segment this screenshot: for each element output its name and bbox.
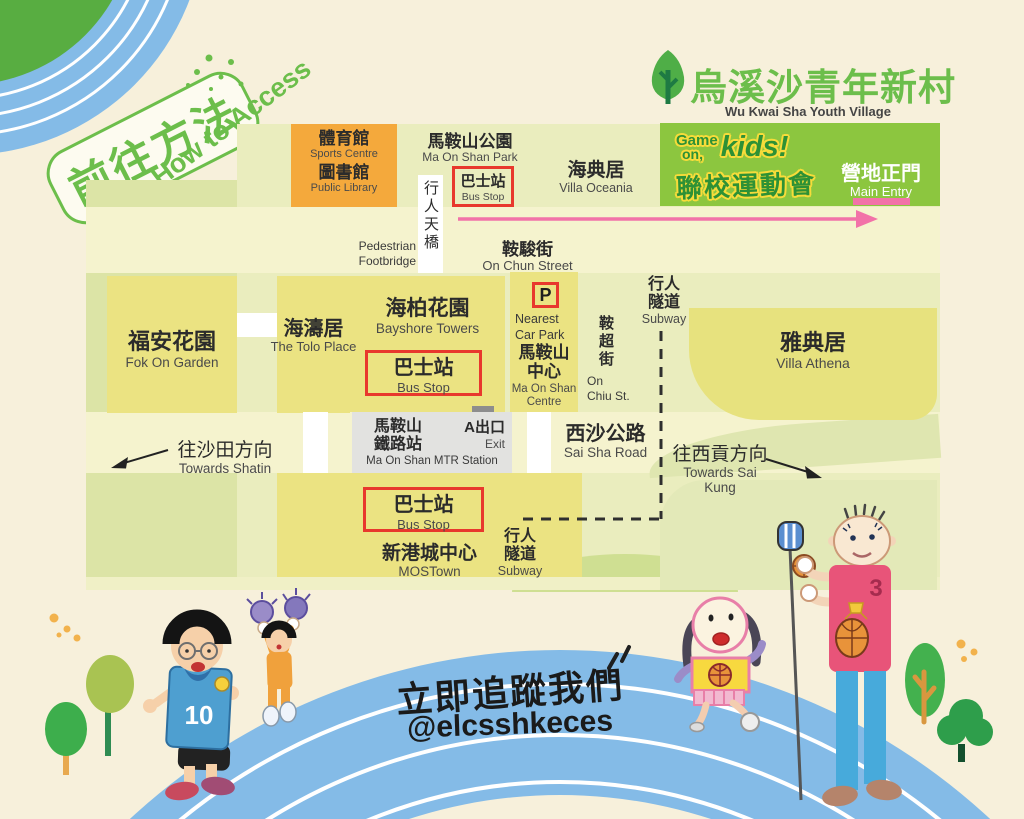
label-sai-sha-road: 西沙公路 Sai Sha Road: [558, 423, 653, 461]
villa-athena-zh: 雅典居: [689, 331, 937, 356]
label-towards-shatin: 往沙田方向 Towards Shatin: [170, 440, 280, 476]
bayshore-zh: 海柏花園: [350, 297, 505, 321]
tree-tall-green: [905, 643, 945, 722]
tree-icon: [646, 48, 690, 106]
bus-stop-zh: 巴士站: [460, 170, 505, 191]
confetti-dots-right: [957, 640, 978, 663]
label-villa-athena: 雅典居 Villa Athena: [689, 331, 937, 371]
runner-bib-number: 10: [185, 700, 214, 730]
mtr-exit-platform: [472, 406, 494, 412]
bayshore-en: Bayshore Towers: [350, 321, 505, 336]
label-on-chiu-street-en: On Chiu St.: [587, 374, 633, 404]
on-chun-en: On Chun Street: [480, 259, 575, 274]
main-entry-label: 營地正門 Main Entry: [840, 163, 922, 200]
on-chiu-en1: On: [587, 374, 633, 389]
fok-on-zh: 福安花園: [107, 330, 237, 355]
car-park-en1: Nearest: [515, 311, 575, 327]
mos-centre-zh2: 中心: [508, 362, 580, 381]
exit-a-zh: A出口: [455, 419, 505, 437]
library-en: Public Library: [291, 182, 397, 194]
exit-a-en: Exit: [455, 437, 505, 451]
label-sports-centre-library: 體育館 Sports Centre 圖書館 Public Library: [291, 129, 397, 195]
villa-oceania-en: Villa Oceania: [553, 181, 639, 195]
fok-on-en: Fok On Garden: [107, 355, 237, 370]
villa-oceania-zh: 海典居: [553, 160, 639, 181]
access-map-poster: 前往方法 How to Access 烏溪沙青年新村 Wu Kwai Sha Y…: [0, 0, 1024, 819]
event-logo-kids: kids!: [721, 131, 789, 164]
subway-en: Subway: [640, 312, 688, 326]
label-tolo-place: 海濤居 The Tolo Place: [268, 318, 359, 355]
car-park-box: P: [532, 282, 559, 308]
bus-stop-box-bayshore: 巴士站 Bus Stop: [365, 350, 482, 396]
subway-en: Subway: [494, 564, 546, 578]
label-mtr-en: Ma On Shan MTR Station: [354, 455, 510, 467]
crossing: [303, 412, 328, 473]
label-bayshore-towers: 海柏花園 Bayshore Towers: [350, 297, 505, 336]
mos-centre-zh1: 馬鞍山: [508, 343, 580, 362]
event-logo-name: 聯校運動會: [675, 164, 816, 206]
mostown-en: MOSTown: [352, 564, 507, 579]
sai-sha-en: Sai Sha Road: [558, 445, 653, 460]
car-park-symbol: P: [539, 285, 551, 306]
mtr-zh1: 馬鞍山: [374, 418, 436, 436]
tree-bushy-green: [937, 699, 993, 762]
mos-centre-en2: Centre: [508, 396, 580, 409]
tolo-zh: 海濤居: [268, 318, 359, 340]
subway-zh2: 隧道: [494, 546, 546, 564]
label-mtr-zh: 馬鞍山 鐵路站: [374, 418, 436, 453]
village-title-en-text: Wu Kwai Sha Youth Village: [725, 104, 891, 119]
label-subway-south: 行人 隧道 Subway: [494, 528, 546, 578]
library-zh: 圖書館: [291, 163, 397, 182]
mos-centre-en1: Ma On Shan: [508, 383, 580, 396]
label-fok-on-garden: 福安花園 Fok On Garden: [107, 330, 237, 370]
shatin-en: Towards Shatin: [170, 461, 280, 476]
label-exit-a: A出口 Exit: [455, 419, 505, 451]
mtr-zh2: 鐵路站: [374, 436, 436, 454]
label-footbridge-zh: 行人天橋: [420, 180, 441, 272]
bus-stop-box-mostown: 巴士站 Bus Stop: [363, 487, 484, 532]
label-mos-centre: 馬鞍山 中心 Ma On Shan Centre: [508, 343, 580, 409]
park-en: Ma On Shan Park: [400, 151, 540, 164]
villa-athena-en: Villa Athena: [689, 356, 937, 372]
sports-centre-en: Sports Centre: [291, 148, 397, 160]
label-subway-north: 行人 隧道 Subway: [640, 276, 688, 326]
event-logo: Game on, kids! 聯校運動會: [676, 131, 816, 203]
village-title-text: 烏溪沙青年新村: [690, 67, 956, 108]
village-title: 烏溪沙青年新村: [690, 57, 956, 111]
sai-sha-zh: 西沙公路: [558, 423, 653, 445]
confetti-dots-left: [50, 614, 81, 642]
label-towards-sai-kung: 往西貢方向 Towards Sai Kung: [670, 444, 770, 495]
sai-kung-zh: 往西貢方向: [670, 444, 770, 465]
event-logo-on: on,: [682, 148, 718, 161]
mostown-zh: 新港城中心: [352, 543, 507, 564]
village-title-en: Wu Kwai Sha Youth Village: [688, 104, 928, 119]
label-on-chun-street: 鞍駿街 On Chun Street: [480, 240, 575, 274]
tree-olive: [86, 655, 134, 756]
bus-stop-en: Bus Stop: [397, 517, 450, 532]
car-park-en2: Car Park: [515, 327, 575, 343]
sai-kung-en: Towards Sai Kung: [670, 465, 770, 495]
sports-centre-zh: 體育館: [291, 129, 397, 148]
park-zh: 馬鞍山公園: [400, 132, 540, 151]
tree-round-green: [45, 702, 87, 775]
crossing: [527, 412, 551, 473]
subway-zh1: 行人: [494, 528, 546, 546]
shatin-zh: 往沙田方向: [170, 440, 280, 461]
bus-stop-zh: 巴士站: [394, 488, 454, 517]
label-villa-oceania: 海典居 Villa Oceania: [553, 160, 639, 195]
bus-stop-en: Bus Stop: [462, 191, 505, 203]
main-entry-marker: [853, 198, 910, 205]
subway-zh2: 隧道: [640, 294, 688, 312]
bus-stop-zh: 巴士站: [394, 351, 454, 380]
on-chun-zh: 鞍駿街: [480, 240, 575, 259]
area-south-east: [660, 480, 937, 590]
label-ma-on-shan-park: 馬鞍山公園 Ma On Shan Park: [400, 132, 540, 164]
label-nearest-car-park: Nearest Car Park: [515, 311, 575, 344]
on-chiu-en2: Chiu St.: [587, 389, 633, 404]
subway-zh1: 行人: [640, 276, 688, 294]
label-on-chiu-street-zh: 鞍超街: [595, 315, 616, 381]
bus-stop-en: Bus Stop: [397, 380, 450, 395]
tolo-en: The Tolo Place: [268, 340, 359, 355]
bus-stop-box-park: 巴士站 Bus Stop: [452, 166, 514, 207]
main-entry-zh: 營地正門: [840, 163, 922, 185]
label-footbridge-en: Pedestrian Footbridge: [338, 239, 416, 269]
label-mostown: 新港城中心 MOSTown: [352, 543, 507, 579]
